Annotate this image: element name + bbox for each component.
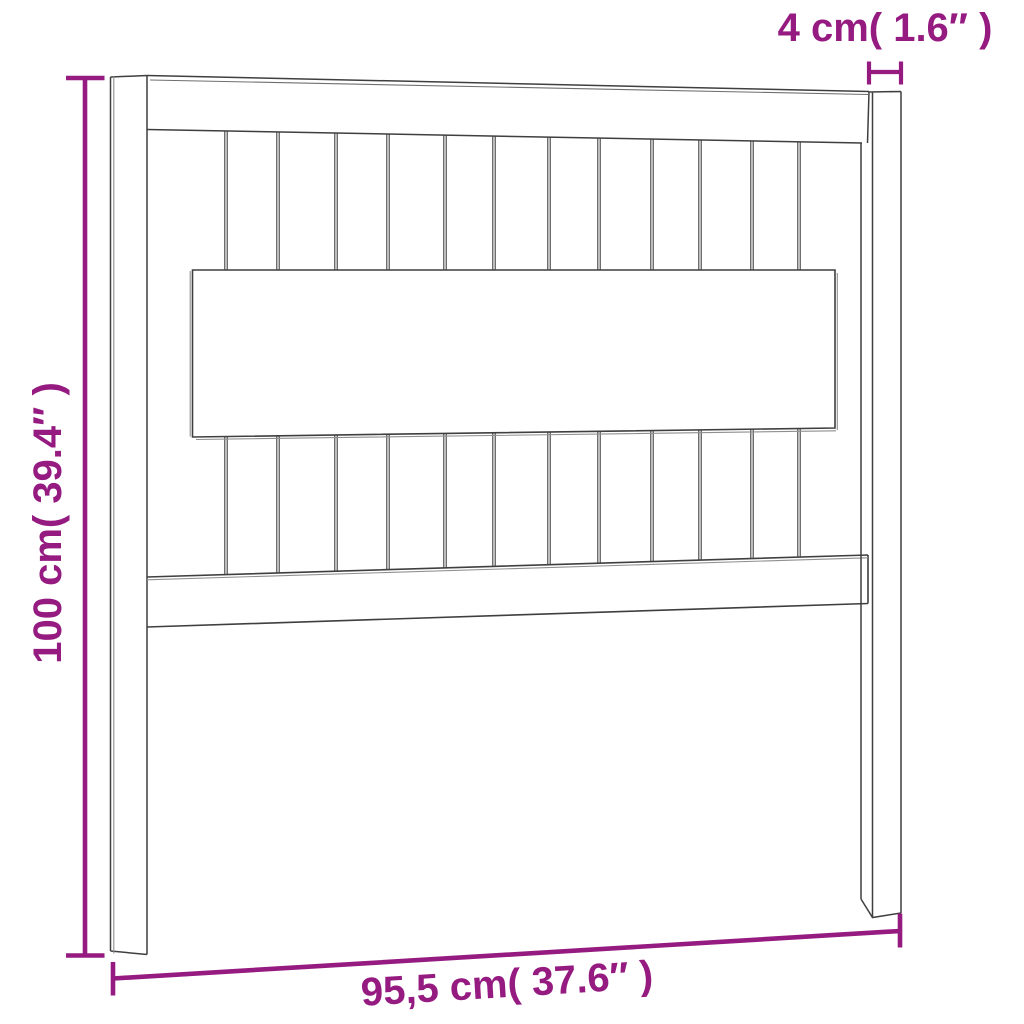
dimension-lines bbox=[66, 62, 901, 996]
lower-slats bbox=[225, 429, 800, 575]
headboard-line-drawing bbox=[0, 0, 1024, 1024]
right-post bbox=[861, 92, 901, 918]
post-width-dimension-label: 4 cm( 1.6″ ) bbox=[725, 5, 1024, 51]
top-rail bbox=[147, 76, 869, 144]
height-dimension-line bbox=[66, 78, 105, 956]
center-panel bbox=[190, 270, 837, 440]
post-width-dimension-line bbox=[869, 62, 901, 85]
bottom-rail bbox=[147, 555, 868, 627]
height-dimension-label: 100 cm( 39.4″ ) bbox=[25, 363, 71, 683]
upper-slats bbox=[225, 132, 800, 271]
dimension-diagram: 4 cm( 1.6″ ) 100 cm( 39.4″ ) 95,5 cm( 37… bbox=[0, 0, 1024, 1024]
headboard bbox=[111, 76, 902, 955]
left-post bbox=[111, 76, 148, 955]
